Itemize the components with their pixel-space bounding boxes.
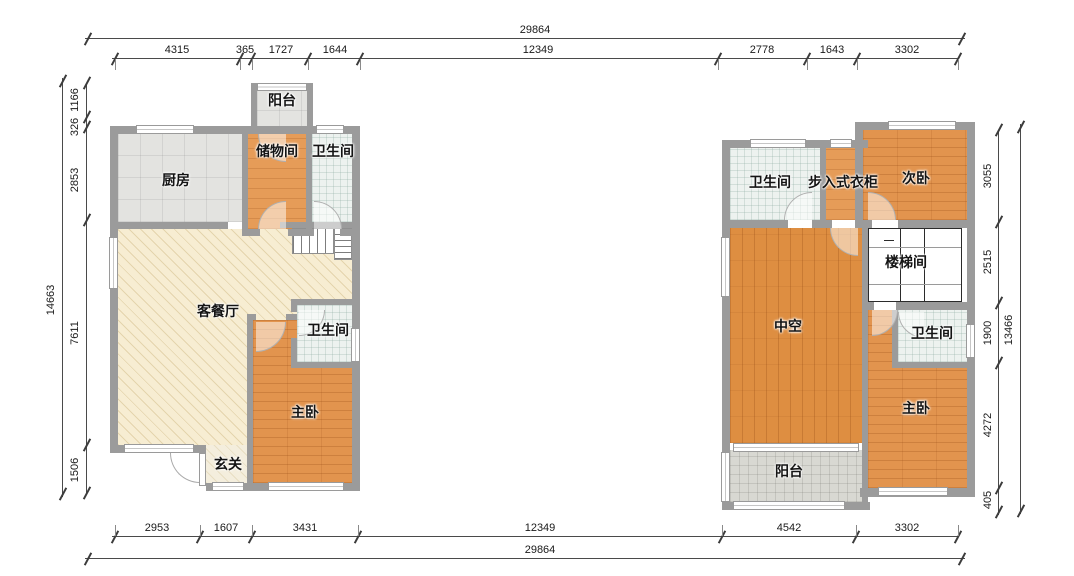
room-label-void: 中空 [774,316,802,336]
dim-tick [84,552,92,565]
dim-tick [83,76,91,89]
dim-total-bottom: 29864 [525,544,556,556]
dim-segment: 12349 [523,44,554,56]
room-label-storage: 储物间 [256,141,298,161]
dim-line [86,83,87,493]
dim-segment: 365 [236,44,254,56]
dim-tick [995,481,1003,494]
dim-line [112,536,958,537]
room-label-entry: 玄关 [214,454,242,474]
floor-plan-canvas: 阳台 厨房 储物间 卫生间 客餐厅 卫生间 主卧 玄关 [0,0,1074,576]
wall [242,229,260,236]
entry-door-leaf [199,453,206,486]
stair-direction-arrow [884,240,894,241]
dim-extension [252,525,253,536]
dim-segment: 1900 [982,321,994,345]
dim-segment: 3431 [293,522,317,534]
wall [110,126,118,453]
dim-line [62,78,63,497]
dim-tick [995,505,1003,518]
dim-segment: 3055 [982,164,994,188]
dim-segment: 12349 [525,522,556,534]
wall [862,220,872,228]
dim-segment: 1644 [323,44,347,56]
dim-tick [84,32,92,45]
window [733,501,845,510]
window [268,482,344,491]
dim-tick [995,356,1003,369]
wall [896,302,975,310]
dim-extension [856,525,857,536]
dim-segment: 1727 [269,44,293,56]
dim-segment: 7611 [69,321,81,345]
dim-segment: 4272 [982,413,994,437]
room-label-stairwell: 楼梯间 [885,252,927,272]
room-label-bath-mid: 卫生间 [307,320,349,340]
window [109,237,118,289]
dim-segment: 3302 [895,44,919,56]
dim-total-top: 29864 [520,24,551,36]
wall [288,229,314,236]
dim-tick [59,487,67,500]
dim-segment: 2515 [982,250,994,274]
dim-line [1020,124,1021,514]
room-label-master-2f: 主卧 [902,398,930,418]
wall [242,126,248,236]
wall [307,83,313,134]
room-label-bath-mid-2f: 卫生间 [911,323,953,343]
window [830,139,852,148]
stair-tread [869,247,961,248]
dim-segment: 3302 [895,522,919,534]
dim-tick [83,213,91,226]
dim-tick [995,215,1003,228]
dim-tick [958,32,966,45]
room-label-bath-top-2f: 卫生间 [749,172,791,192]
wall [898,220,975,228]
dim-extension [252,59,253,70]
dim-extension [718,59,719,70]
room-label-balcony: 阳台 [268,90,296,110]
room-label-living: 客餐厅 [197,301,239,321]
window [888,121,956,130]
wall [291,299,297,312]
wall [110,222,228,229]
dim-tick [995,123,1003,136]
dim-extension [115,525,116,536]
dim-segment: 4315 [165,44,189,56]
dim-tick [83,486,91,499]
dim-segment: 2953 [145,522,169,534]
dim-segment: 2853 [69,168,81,192]
entry-door-arc [170,453,200,483]
wall [352,126,360,491]
window [136,125,194,134]
dim-total-right: 13466 [1003,315,1015,346]
dim-line [85,38,965,39]
wall [291,299,360,305]
wall [286,314,297,320]
window [721,237,730,297]
dim-extension [115,59,116,70]
dim-extension [807,59,808,70]
window [733,443,859,452]
dim-extension [722,525,723,536]
room-label-balcony-2f: 阳台 [775,461,803,481]
dim-tick [995,296,1003,309]
room-label-bath-top: 卫生间 [312,141,354,161]
dim-segment: 1607 [214,522,238,534]
window [212,482,244,491]
dim-extension [358,525,359,536]
dim-tick [1017,504,1025,517]
wall [892,362,967,368]
dim-segment: 1506 [69,458,81,482]
dim-tick [1017,120,1025,133]
dim-extension [240,59,241,70]
wall [340,229,360,236]
room-label-closet: 步入式衣柜 [808,172,878,192]
wall [722,220,788,228]
dim-tick [59,74,67,87]
window [351,328,360,362]
dim-segment: 1643 [820,44,844,56]
dim-line [998,130,999,515]
window [750,139,806,148]
dim-segment: 4542 [777,522,801,534]
window [316,125,344,134]
wall [247,314,253,483]
wall [862,302,874,310]
window [878,487,948,496]
dim-extension [308,59,309,70]
dim-segment: 405 [982,491,994,509]
room-label-master: 主卧 [291,402,319,422]
room-label-kitchen: 厨房 [162,170,190,190]
dim-segment: 1166 [69,88,81,112]
stair-tread [869,284,961,285]
dim-total-left: 14663 [45,285,57,316]
dim-extension [200,525,201,536]
room-label-second-bedroom: 次卧 [902,168,930,188]
dim-tick [83,438,91,451]
dim-extension [857,59,858,70]
window [124,444,194,453]
window [721,452,730,502]
window [966,324,975,358]
dim-extension [958,525,959,536]
dim-extension [958,59,959,70]
wall [291,362,360,368]
dim-segment: 326 [69,118,81,136]
dim-segment: 2778 [750,44,774,56]
dim-extension [360,59,361,70]
wall [812,220,832,228]
wall [862,228,868,502]
dim-tick [958,552,966,565]
dim-line [85,558,965,559]
